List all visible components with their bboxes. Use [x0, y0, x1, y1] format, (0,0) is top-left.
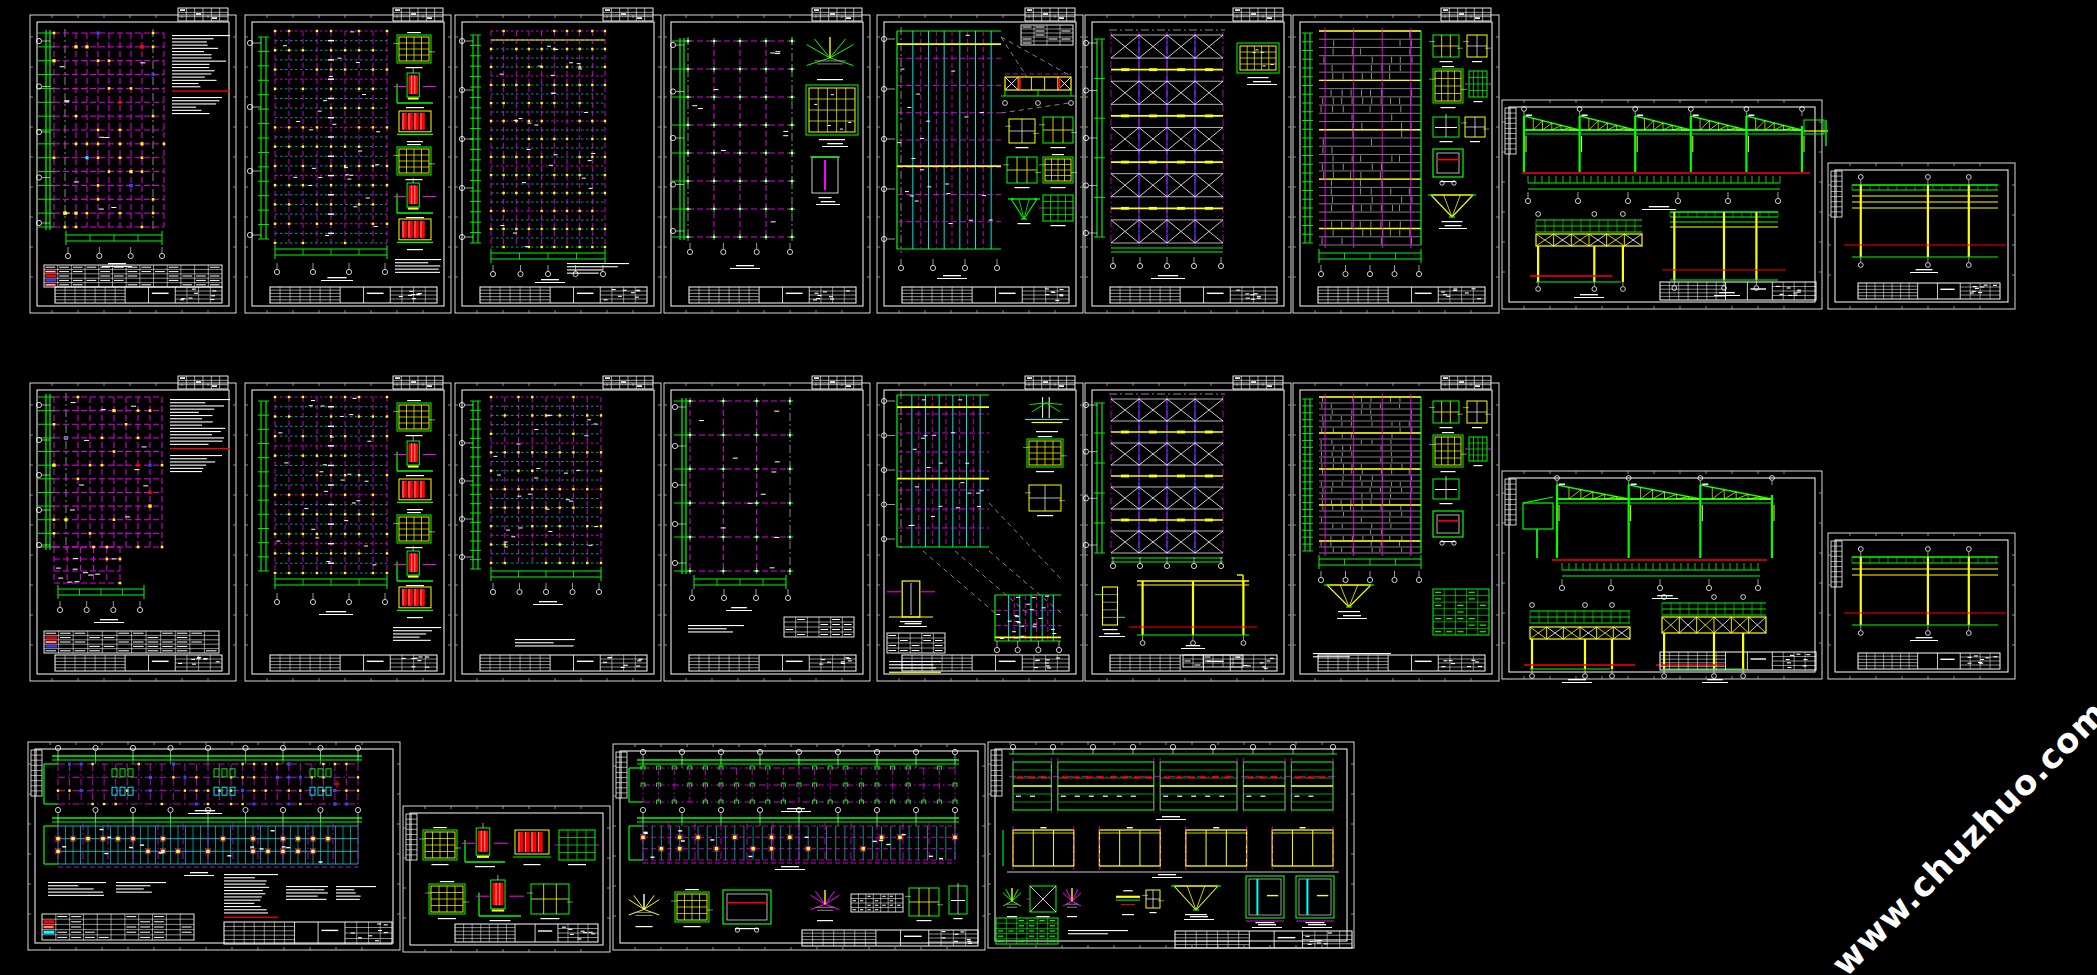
r2c3-denseplan-1: [490, 396, 602, 564]
r3t4-notes-16: [1068, 930, 1128, 934]
r2c2-detail-10: [397, 587, 433, 618]
r2c5-diag-5: [923, 503, 1061, 613]
r3t4-caption-10: [1184, 916, 1214, 920]
r2s9-portal-0: [1844, 547, 2006, 636]
sheet-r2c6[interactable]: [1083, 376, 1291, 681]
r1c4-caption-8: [730, 265, 760, 269]
r2c2-denseplan-1: [274, 396, 388, 574]
r1c4-title-block: [689, 287, 856, 303]
r2c6-detail-4: [1095, 587, 1125, 630]
r1s9-title-block: [1858, 283, 2000, 299]
r1c7-ladder-0: [1302, 33, 1313, 243]
sheet-r1c5[interactable]: [877, 8, 1083, 313]
r1s8-comb-2: [1528, 176, 1780, 189]
r2c1-notes-6: [170, 399, 230, 449]
r3t1-strip-0: [44, 745, 362, 805]
r1c3-caption-5: [535, 279, 565, 283]
sheet-r1s8[interactable]: [1502, 100, 1828, 309]
r3t2-detail-3: [555, 830, 599, 865]
r1c7-detail-6: [1429, 66, 1467, 108]
r1c4-detail-3: [807, 37, 854, 80]
r1c2-caption-12: [321, 277, 353, 281]
r3t1-notes-7: [286, 886, 328, 900]
r1c5-detail-6: [1039, 117, 1077, 148]
r3t4-gtable-15: [996, 918, 1058, 944]
r3t4-caption-14: [1302, 924, 1332, 928]
r3t4-detail-9: [1171, 886, 1221, 915]
r2c2-caption-4: [319, 611, 353, 615]
r3t4-segstrip-0: [1009, 744, 1337, 816]
r2c4-table-5: [784, 617, 854, 637]
sheet-r2c3[interactable]: [455, 376, 661, 681]
r1c1-notes-5: [172, 35, 230, 92]
r1c4-plan-0: [672, 37, 795, 241]
r1s8-trussframe-5: [1530, 212, 1642, 292]
r2c6-xbrace-1: [1109, 394, 1225, 562]
r1c2-bubblerow-3: [274, 263, 387, 275]
r1c1-bubblecol-2: [36, 38, 50, 225]
r1s9-caption-1: [1910, 269, 1938, 273]
r3t1-caption-1: [188, 810, 222, 814]
r1c5-diag-3: [1001, 37, 1069, 113]
r3t3-strip-2: [629, 807, 959, 863]
sheet-r1c3[interactable]: [455, 8, 661, 313]
r1c5-vplan-0: [897, 27, 1001, 253]
r3t3-title-block: [802, 930, 978, 946]
r3t2-detail-5: [476, 875, 524, 921]
r2c7-detail-4: [1429, 401, 1463, 428]
r1c6-caption-4: [1247, 81, 1277, 85]
drawing-canvas[interactable]: [0, 0, 2097, 975]
sheet-r2c2[interactable]: [245, 376, 451, 681]
r2s9-title-block: [1858, 653, 2000, 669]
r1s8-caption-4: [1642, 206, 1676, 210]
r2c7-detail-8: [1433, 476, 1459, 504]
r2c3-caption-5: [533, 601, 563, 605]
r1c5-title-block: [902, 287, 1069, 303]
sheet-r3t3[interactable]: [613, 744, 985, 950]
r1c6-title-block: [1110, 287, 1277, 303]
r1c2-ladder-0: [258, 37, 269, 239]
r1c3-title-block: [480, 287, 647, 303]
r1c1-baseband-1: [66, 231, 162, 245]
r2c2-detail-5: [393, 400, 435, 436]
r1c2-detail-7: [397, 111, 433, 142]
sheet-r2c4[interactable]: [664, 376, 870, 681]
r2c7-ladder-0: [1302, 399, 1313, 551]
r3t4-caption-12: [1252, 924, 1282, 928]
r3t4-framerow-2: [1003, 826, 1339, 872]
r1c7-purlin-1: [1319, 28, 1421, 248]
r2c4-caption-4: [726, 607, 752, 611]
r3t4-detail-5: [1027, 886, 1056, 917]
r2c2-ladder-0: [258, 401, 269, 571]
r2c6-ladder-0: [1094, 403, 1105, 553]
r1c6-detail-3: [1237, 43, 1279, 78]
r1c4-detail-6: [810, 157, 840, 198]
r3t4-caption-3: [1152, 874, 1182, 878]
r1c7-title-block: [1318, 287, 1485, 303]
r2c4-plan-0: [674, 397, 793, 575]
r2c1-baseband-2: [58, 585, 144, 599]
r1s8-bubblerow-3: [1525, 192, 1780, 204]
r3t3-detail-6: [723, 890, 771, 932]
r2c6-bubblerow-3: [1110, 557, 1223, 569]
r2c7-detail-9: [1433, 511, 1463, 545]
r1c1-bubblerow-3: [65, 247, 164, 259]
r1c2-denseplan-1: [274, 30, 388, 244]
r3t2-title-block: [455, 924, 598, 942]
r2c4-baseband-2: [694, 575, 786, 589]
r3t3-strip-0: [629, 749, 959, 804]
r3t4-detail-11: [1246, 876, 1284, 923]
r3t4-detail-13: [1296, 876, 1334, 923]
r1c2-detail-5: [393, 32, 435, 68]
r2c7-detail-10: [1324, 585, 1374, 612]
r1c5-bubblecol-1: [881, 36, 895, 241]
r1s8-caption-6: [1574, 294, 1604, 298]
sheet-r1c2[interactable]: [245, 8, 451, 313]
r2c1-plan-1: [54, 546, 121, 585]
r1s9-portal-0: [1844, 175, 2006, 268]
r2c2-detail-7: [397, 479, 433, 510]
r2c1-bubblerow-4: [57, 601, 142, 613]
r1c5-detail-7: [1003, 157, 1041, 188]
r2c5-detail-3: [1023, 436, 1067, 472]
r1c7-detail-4: [1429, 35, 1463, 62]
r1c5-detail-5: [1005, 119, 1039, 148]
r2c5-bubblecol-1: [881, 398, 895, 541]
r1c7-detail-8: [1433, 114, 1459, 142]
r2c1-title-block: [55, 655, 222, 671]
r2c3-baseband-2: [491, 567, 601, 581]
r1c7-bubblerow-3: [1318, 265, 1421, 277]
r3t1-notes-4: [48, 882, 106, 896]
sheet-r2c1[interactable]: [30, 376, 236, 681]
r2c5-caption-9: [899, 623, 927, 627]
r2c3-notes-6: [515, 639, 575, 647]
r1c5-detail-9: [1008, 199, 1040, 224]
sheet-r3t1[interactable]: [28, 742, 400, 950]
r2c7-detail-7: [1465, 437, 1491, 466]
r3t3-detail-7: [811, 890, 840, 921]
r3t3-caption-3: [775, 866, 805, 870]
r1c6-xbrace-1: [1109, 30, 1225, 252]
r2c4-title-block: [689, 655, 856, 671]
sheet-r3t2[interactable]: [403, 806, 610, 952]
r3t4-title-block: [1175, 931, 1352, 948]
r1c7-detail-9: [1461, 117, 1489, 142]
r2c2-detail-9: [394, 546, 436, 586]
r2c1-caption-5: [94, 619, 124, 623]
r1c6-bubblerow-5: [1110, 257, 1223, 269]
r2c7-purlin-1: [1319, 394, 1421, 556]
r1c5-trussband-4: [1001, 74, 1075, 105]
r2c7-bubblerow-3: [1318, 571, 1421, 583]
r3t3-detail-5: [671, 889, 713, 927]
r2s8-sawtooth-0: [1523, 476, 1774, 558]
r3t1-notes-6: [224, 874, 278, 918]
r3t1-table-9: [42, 914, 194, 940]
r3t3-detail-10: [949, 883, 967, 919]
r2c5-detail-8: [887, 581, 935, 622]
r1c7-detail-7: [1465, 71, 1491, 102]
sheet-r2s9[interactable]: [1828, 533, 2015, 679]
r3t3-caption-1: [781, 808, 811, 812]
r2c1-plan-0: [38, 393, 163, 551]
sheet-r2c7[interactable]: [1293, 376, 1499, 681]
r2c2-baseband-2: [275, 575, 387, 589]
r1c5-caption-12: [937, 275, 967, 279]
r2c3-ladder-0: [470, 401, 481, 569]
r3t2-detail-4: [425, 881, 469, 919]
r1c2-baseband-2: [275, 245, 387, 259]
r2c3-bubblerow-3: [490, 583, 601, 595]
r3t4-detail-7: [1116, 890, 1140, 915]
r1c7-detail-10: [1433, 149, 1463, 185]
r2c5-title-block: [902, 655, 1069, 671]
r1c2-notes-11: [395, 259, 441, 273]
r1c2-detail-10: [397, 219, 433, 250]
sheet-r1c4[interactable]: [664, 8, 870, 313]
sheet-r2s8[interactable]: [1502, 471, 1822, 683]
r2c2-detail-8: [393, 512, 435, 548]
r2c5-table-10: [887, 633, 945, 653]
r1c7-detail-5: [1463, 35, 1491, 62]
r3t3-detail-4: [629, 894, 660, 927]
r2c6-portal-6: [1129, 575, 1257, 645]
r2c2-title-block: [270, 655, 437, 671]
r2c5-detail-2: [1025, 397, 1069, 432]
r1s8-portal-7: [1662, 212, 1786, 290]
r2c3-title-block: [480, 655, 647, 671]
r1c6-caption-6: [1151, 275, 1185, 279]
r2c6-caption-5: [1099, 633, 1125, 637]
sheet-r2c5[interactable]: [877, 376, 1083, 681]
r2c7-baseband-2: [1319, 555, 1421, 569]
r3t1-title-block: [224, 922, 392, 944]
sheet-r3t4[interactable]: [988, 742, 1354, 948]
r3t3-detail-9: [905, 888, 943, 921]
r2s8-caption-4: [1652, 595, 1678, 599]
r2c3-bubblecol-4: [459, 402, 473, 559]
sheet-r1s9[interactable]: [1828, 163, 2015, 309]
r2c7-detail-6: [1429, 432, 1467, 472]
r1c2-detail-9: [394, 178, 436, 218]
r2c5-bubblerow-7: [994, 641, 1061, 653]
r1c1-table-7: [44, 265, 222, 287]
r3t2-detail-0: [419, 827, 461, 865]
r3t2-detail-1: [462, 823, 508, 867]
r1c7-baseband-2: [1319, 249, 1421, 263]
r1c7-detail-11: [1428, 195, 1476, 222]
r1s8-title-block: [1660, 282, 1816, 300]
r1c1-notes-6: [172, 97, 222, 114]
r2c7-detail-5: [1463, 401, 1491, 428]
r1c3-baseband-2: [491, 249, 605, 263]
r3t4-caption-1: [1156, 816, 1186, 820]
r1c4-caption-5: [822, 143, 848, 147]
cad-model-space[interactable]: www.chuzhuo.com: [0, 0, 2097, 975]
r1c7-caption-12: [1439, 225, 1467, 229]
r2c5-vplan-6: [995, 595, 1061, 641]
r1c4-detail-4: [806, 85, 858, 140]
r2c7-caption-11: [1337, 615, 1367, 619]
r2c1-notes-7: [170, 455, 222, 472]
r2s8-trussframe-7: [1656, 595, 1766, 679]
r2c2-bubblerow-3: [274, 593, 387, 605]
r3t1-strip-2: [44, 807, 362, 867]
sheet-r1c1[interactable]: [30, 8, 236, 313]
r2s8-caption-8: [1702, 679, 1728, 683]
r1c4-bubblerow-2: [687, 243, 792, 255]
r1s8-sawtooth-0: [1522, 107, 1828, 172]
r2c4-bubblerow-3: [689, 589, 790, 601]
r1c3-bubblecol-4: [459, 38, 473, 239]
r2s8-caption-6: [1562, 679, 1592, 683]
r3t4-detail-6: [1063, 888, 1081, 917]
r3t1-caption-3: [184, 872, 214, 876]
r2c2-detail-6: [394, 436, 436, 476]
r2c7-title-block: [1318, 655, 1485, 671]
r1c5-detail-10: [1039, 195, 1077, 226]
r2c5-detail-4: [1025, 485, 1065, 516]
r3t1-notes-8: [336, 886, 376, 900]
r2c5-vplan-0: [897, 391, 989, 551]
r2c4-notes-6: [688, 625, 744, 633]
r1c4-bubblecol-1: [670, 42, 684, 233]
r3t1-notes-5: [116, 882, 166, 893]
r3t3-table-8: [851, 894, 903, 912]
r1c1-title-block: [55, 287, 222, 303]
r3t2-detail-2: [513, 830, 551, 865]
r1c3-notes-6: [567, 263, 629, 274]
sheet-r1c6[interactable]: [1083, 8, 1291, 313]
r3t4-detail-8: [1142, 890, 1164, 913]
r1c1-plan-0: [38, 29, 165, 231]
r1c5-table-2: [1021, 25, 1073, 45]
r1c4-caption-7: [816, 201, 840, 205]
r2s8-trussframe-5: [1524, 603, 1635, 679]
r2s9-caption-1: [1910, 637, 1938, 641]
r2s8-comb-2: [1562, 563, 1760, 576]
r1c2-detail-8: [393, 144, 435, 180]
r2c4-bubblecol-1: [672, 404, 686, 565]
r1c2-bubblecol-4: [247, 40, 261, 237]
r3t2-detail-6: [527, 884, 573, 919]
r2c7-gtable-12: [1433, 589, 1489, 635]
r2s8-title-block: [1660, 652, 1816, 670]
r1c5-detail-8: [1039, 154, 1077, 188]
r3t4-detail-4: [1003, 888, 1021, 917]
r1c5-bubblerow-11: [898, 259, 999, 271]
r2c2-notes-11: [393, 627, 441, 641]
r1c2-title-block: [270, 287, 437, 303]
sheet-r1c7[interactable]: [1293, 8, 1499, 313]
r2s8-bubblerow-3: [1559, 579, 1760, 591]
r1c2-detail-6: [394, 68, 436, 108]
r1c3-denseplan-1: [490, 30, 606, 248]
r2c6-caption-7: [1181, 645, 1205, 649]
r2c1-table-8: [44, 631, 219, 653]
